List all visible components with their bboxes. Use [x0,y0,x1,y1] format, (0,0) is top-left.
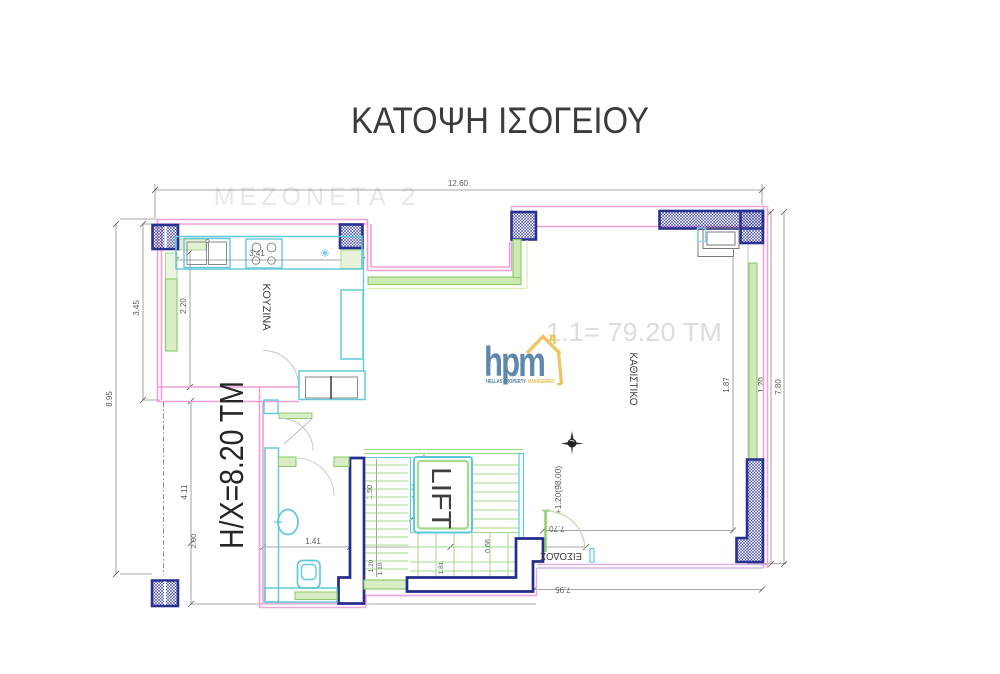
svg-text:3.45: 3.45 [132,300,141,316]
svg-text:1.1= 79.20 TM: 1.1= 79.20 TM [546,317,722,347]
svg-text:2.00: 2.00 [189,534,198,549]
svg-text:2.20: 2.20 [179,298,188,314]
svg-text:H/X=8.20 TM: H/X=8.20 TM [213,381,250,549]
svg-text:MANAGEMENT: MANAGEMENT [528,379,555,385]
svg-text:ΜΕΖΟΝΕΤΑ 2: ΜΕΖΟΝΕΤΑ 2 [214,183,421,211]
svg-text:1.81: 1.81 [438,561,445,574]
svg-text:0.66: 0.66 [485,539,492,553]
svg-text:+1.20(98.00): +1.20(98.00) [553,466,563,515]
svg-text:ΕΙΣΟΔΟΣ: ΕΙΣΟΔΟΣ [540,550,582,562]
svg-text:7.70: 7.70 [549,524,565,533]
svg-text:12.60: 12.60 [448,179,469,188]
svg-text:8.95: 8.95 [105,391,114,407]
svg-text:1.20: 1.20 [757,377,766,393]
svg-text:4.11: 4.11 [180,484,189,500]
svg-text:ΚΟΥΖΙΝΑ: ΚΟΥΖΙΝΑ [260,284,272,332]
svg-text:LIFT: LIFT [426,467,457,529]
svg-text:ΚΑΤΟΨΗ ΙΣΟΓΕΙΟΥ: ΚΑΤΟΨΗ ΙΣΟΓΕΙΟΥ [351,100,649,141]
svg-text:1.87: 1.87 [722,377,731,393]
svg-text:7.95: 7.95 [555,585,571,594]
svg-text:7.80: 7.80 [774,379,783,395]
svg-text:ΚΑΘΙΣΤΙΚΟ: ΚΑΘΙΣΤΙΚΟ [627,353,639,406]
svg-text:HELLAS PROPERTY: HELLAS PROPERTY [486,379,527,385]
svg-text:1.41: 1.41 [305,537,321,546]
